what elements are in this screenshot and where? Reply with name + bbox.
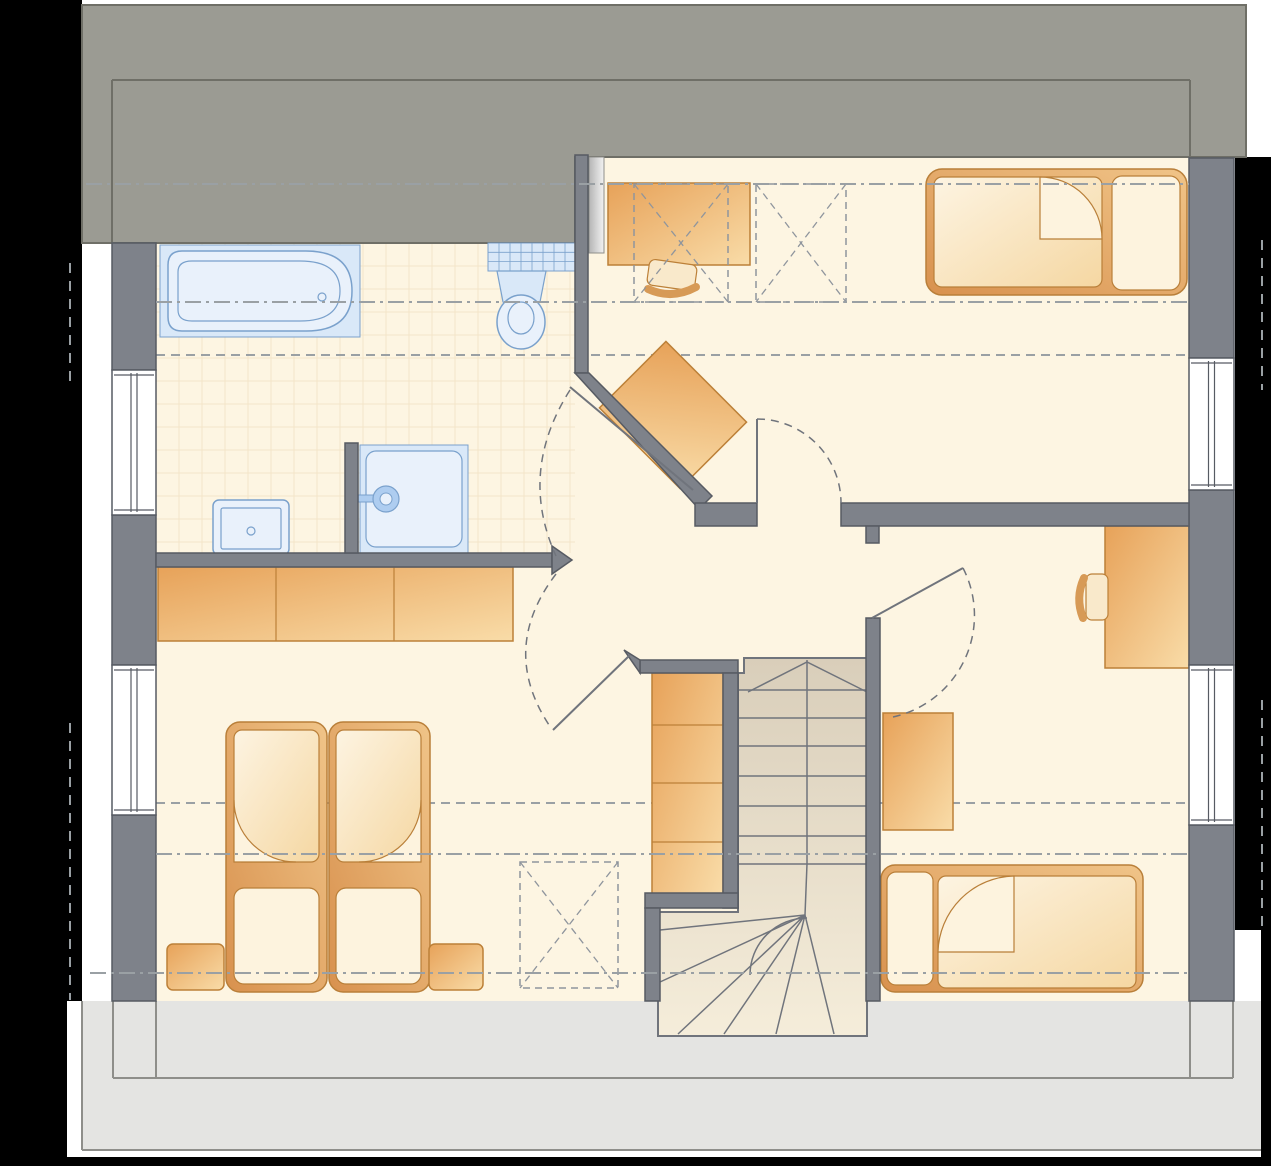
mask-right-lower bbox=[1261, 930, 1271, 1157]
floor-plan-canvas bbox=[0, 0, 1271, 1166]
window-west-2 bbox=[112, 665, 156, 815]
bed-bottom-right-pillow bbox=[887, 872, 933, 985]
window-west-1 bbox=[112, 370, 156, 515]
nightstand-right bbox=[429, 944, 483, 990]
wall-kids1-west bbox=[575, 155, 588, 373]
wall-east-2 bbox=[1189, 490, 1234, 665]
wall-east-1 bbox=[1189, 158, 1234, 358]
wall-hall-east-stub bbox=[866, 526, 879, 543]
desk-at-stair-wall bbox=[883, 713, 953, 830]
sideboard bbox=[158, 567, 513, 641]
window-east-2 bbox=[1189, 665, 1234, 825]
desk-bottom-right-room bbox=[1105, 526, 1189, 668]
bed-parents-right-pillow bbox=[336, 888, 421, 984]
wall-kids1-south-west bbox=[695, 503, 757, 526]
wall-hall-east bbox=[866, 618, 880, 1001]
shower-head-inner bbox=[380, 493, 392, 505]
nightstand-left bbox=[167, 944, 224, 990]
radiator bbox=[589, 157, 604, 253]
bed-top-right-pillow bbox=[1112, 176, 1180, 290]
window-east-1 bbox=[1189, 358, 1234, 490]
wall-west-1 bbox=[112, 243, 156, 370]
wall-niche-top bbox=[640, 660, 738, 673]
wall-bath-divider bbox=[156, 553, 552, 567]
toilet-bowl bbox=[497, 295, 545, 349]
wall-niche-bottom bbox=[645, 893, 738, 908]
wall-west-2 bbox=[112, 515, 156, 665]
bathtub-outer bbox=[168, 251, 352, 331]
floor-plan-svg bbox=[0, 0, 1271, 1166]
wall-shower-stub bbox=[345, 443, 358, 553]
mask-right bbox=[1235, 157, 1271, 930]
bed-parents-left-pillow bbox=[234, 888, 319, 984]
mask-bottom bbox=[0, 1157, 1271, 1166]
mask-left-lower bbox=[0, 1001, 67, 1157]
toilet-tile-splash bbox=[488, 243, 575, 271]
wall-kids1-south-east bbox=[841, 503, 1189, 526]
chair-bottom-right-seat bbox=[1086, 574, 1108, 620]
wall-niche-left bbox=[645, 908, 660, 1001]
wall-east-3 bbox=[1189, 825, 1234, 1001]
wall-stair-left bbox=[723, 673, 738, 908]
shelf-stair-niche bbox=[652, 673, 723, 895]
